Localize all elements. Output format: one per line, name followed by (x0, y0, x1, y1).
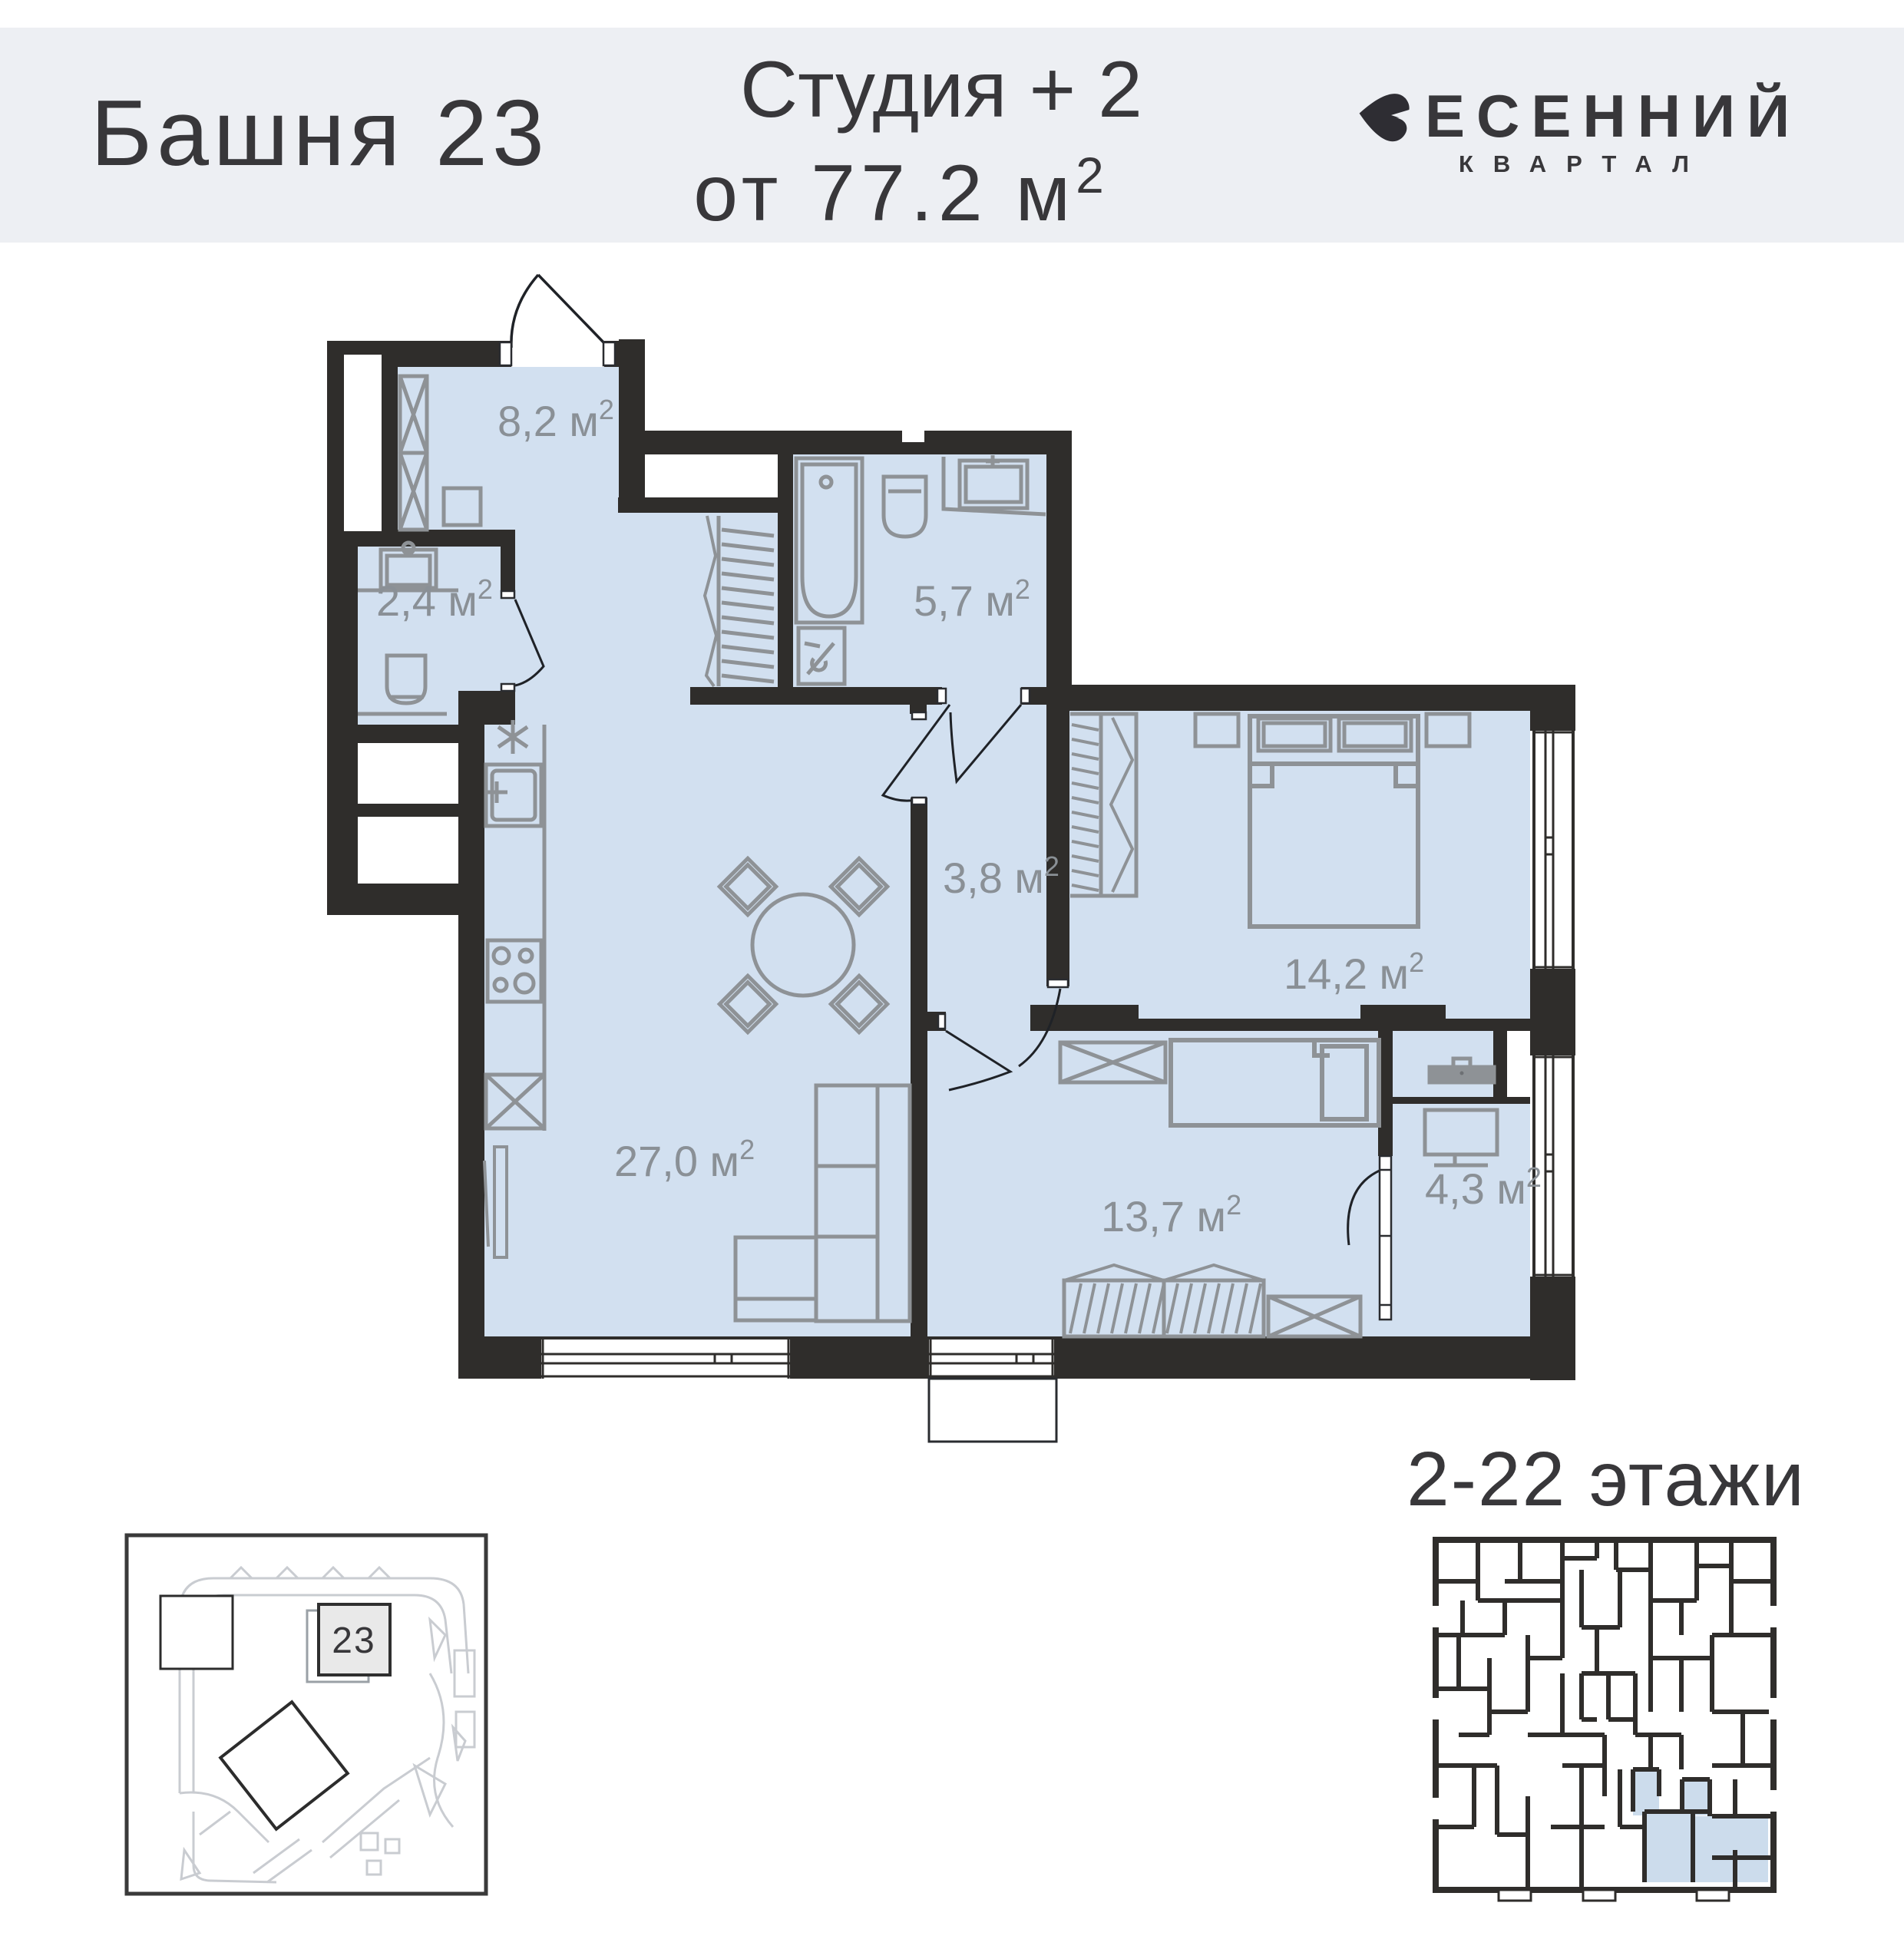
svg-text:13,7 м2: 13,7 м2 (1101, 1189, 1241, 1240)
svg-text:4,3 м2: 4,3 м2 (1425, 1161, 1542, 1213)
svg-text:2,4 м2: 2,4 м2 (376, 573, 493, 625)
svg-text:ЕСЕННИЙ: ЕСЕННИЙ (1425, 82, 1801, 150)
svg-text:14,2 м2: 14,2 м2 (1284, 946, 1424, 998)
svg-text:27,0 м2: 27,0 м2 (614, 1134, 755, 1185)
svg-text:23: 23 (332, 1620, 375, 1661)
svg-text:Башня 23: Башня 23 (91, 81, 549, 185)
svg-text:8,2 м2: 8,2 м2 (497, 394, 614, 445)
svg-text:от 77.2 м2: от 77.2 м2 (693, 147, 1109, 238)
svg-text:КВАРТАЛ: КВАРТАЛ (1459, 150, 1709, 177)
svg-text:3,8 м2: 3,8 м2 (943, 851, 1059, 902)
svg-text:Студия + 2: Студия + 2 (740, 45, 1142, 134)
svg-text:2-22 этажи: 2-22 этажи (1407, 1436, 1806, 1522)
svg-text:5,7 м2: 5,7 м2 (914, 573, 1030, 625)
